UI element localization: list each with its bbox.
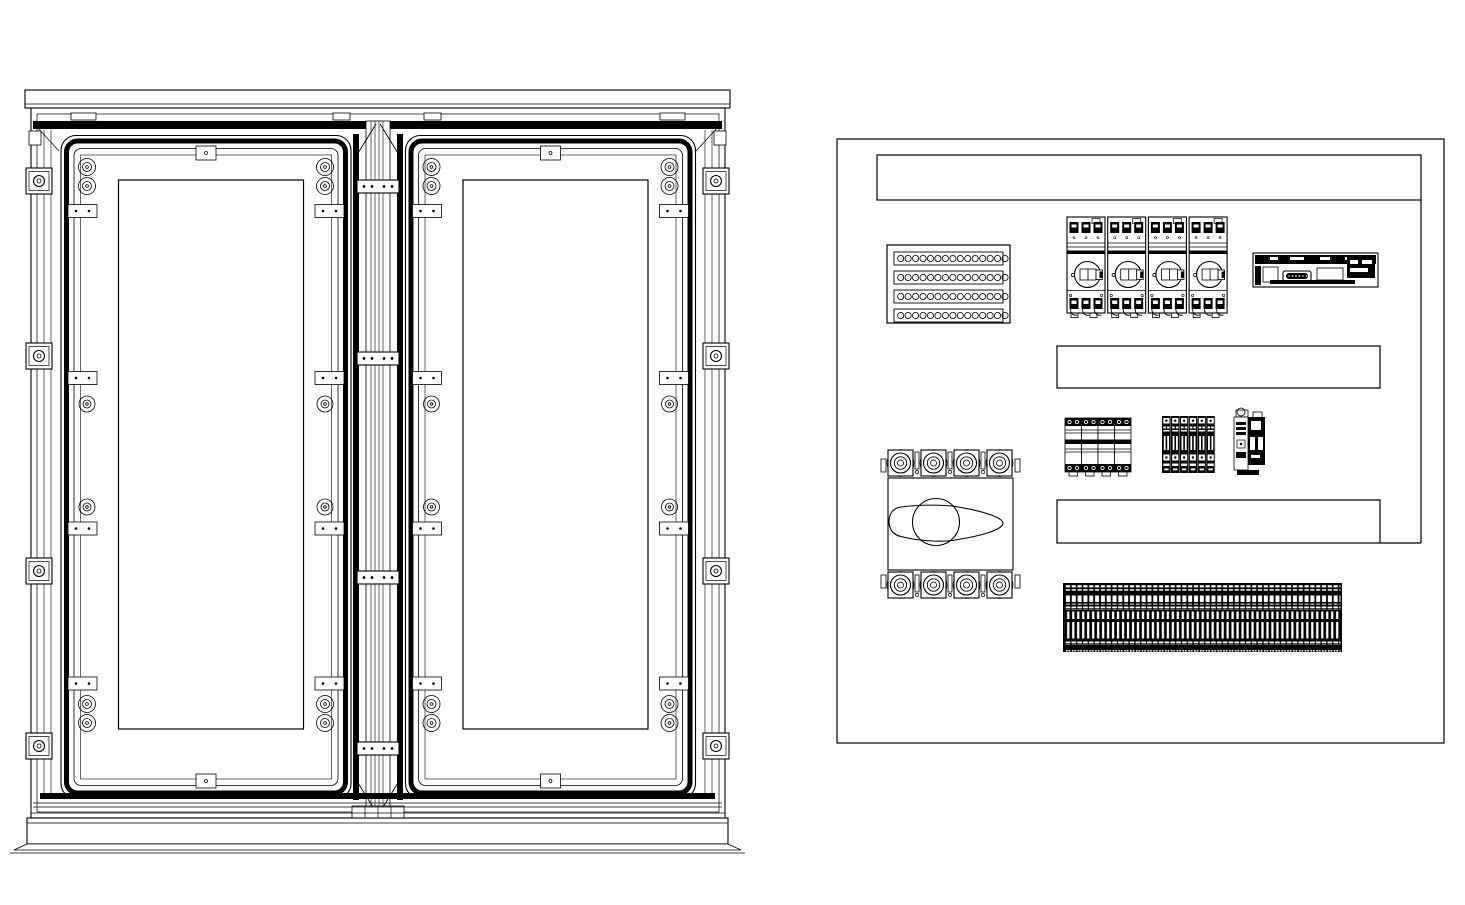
hinge-plate bbox=[357, 571, 399, 584]
mcb-module-1 bbox=[1162, 416, 1171, 473]
bottom-frame-band bbox=[40, 793, 715, 799]
disconnect-lug-top bbox=[953, 450, 980, 477]
hinge-plate bbox=[357, 742, 399, 755]
mcb-module-6 bbox=[1206, 416, 1215, 473]
plinth-skirt bbox=[14, 844, 741, 850]
relay-module-1 bbox=[1065, 418, 1082, 476]
roof-tab bbox=[71, 113, 96, 120]
side-bracket-left bbox=[26, 558, 52, 584]
enclosure-front-view bbox=[10, 90, 745, 853]
plinth bbox=[27, 818, 728, 844]
circuit-breaker-1 bbox=[1067, 217, 1105, 318]
mcb-module-5 bbox=[1197, 416, 1206, 473]
mullion-gasket-right bbox=[397, 134, 403, 800]
disconnect-lug-bottom bbox=[953, 572, 980, 599]
mullion-gasket-left bbox=[353, 134, 359, 800]
circuit-breaker-3 bbox=[1148, 217, 1186, 318]
side-bracket-right bbox=[703, 343, 729, 369]
mcb-module-3 bbox=[1180, 416, 1189, 473]
relay-module-group bbox=[1065, 418, 1131, 476]
side-bracket-left bbox=[26, 343, 52, 369]
terminal-strip bbox=[1063, 583, 1342, 653]
disconnect-lug-top bbox=[986, 450, 1013, 477]
mcb-group bbox=[1162, 416, 1215, 473]
roof-tab bbox=[333, 113, 350, 120]
hinge-plate bbox=[357, 352, 399, 365]
mcb-module-2 bbox=[1171, 416, 1180, 473]
disconnect-lug-bottom bbox=[920, 572, 947, 599]
enclosure-roof bbox=[25, 90, 730, 108]
side-bracket-left bbox=[26, 168, 52, 194]
relay-module-3 bbox=[1098, 418, 1115, 476]
side-bracket-right bbox=[703, 168, 729, 194]
disconnect-lug-top bbox=[920, 450, 947, 477]
disconnect-lug-top bbox=[887, 450, 914, 477]
enclosure-door-1 bbox=[61, 136, 351, 799]
enclosure-door-2 bbox=[406, 136, 696, 799]
side-bracket-right bbox=[703, 558, 729, 584]
relay-module-2 bbox=[1082, 418, 1099, 476]
contactor bbox=[1234, 408, 1265, 475]
disconnect-lug-bottom bbox=[986, 572, 1013, 599]
side-bracket-right bbox=[703, 733, 729, 759]
engineering-drawing bbox=[0, 0, 1465, 905]
terminal-clamps bbox=[1065, 612, 1341, 639]
circuit-breaker-2 bbox=[1108, 217, 1146, 318]
controller-module bbox=[1253, 253, 1378, 287]
disconnect-lug-bottom bbox=[887, 572, 914, 599]
drawing-canvas bbox=[0, 0, 1465, 905]
roof-tab bbox=[660, 113, 685, 120]
circuit-breaker-4 bbox=[1189, 217, 1227, 318]
mcb-module-4 bbox=[1189, 416, 1198, 473]
roof-tab bbox=[424, 113, 441, 120]
relay-module-4 bbox=[1115, 418, 1132, 476]
hinge-plate bbox=[357, 180, 399, 193]
side-bracket-left bbox=[26, 733, 52, 759]
